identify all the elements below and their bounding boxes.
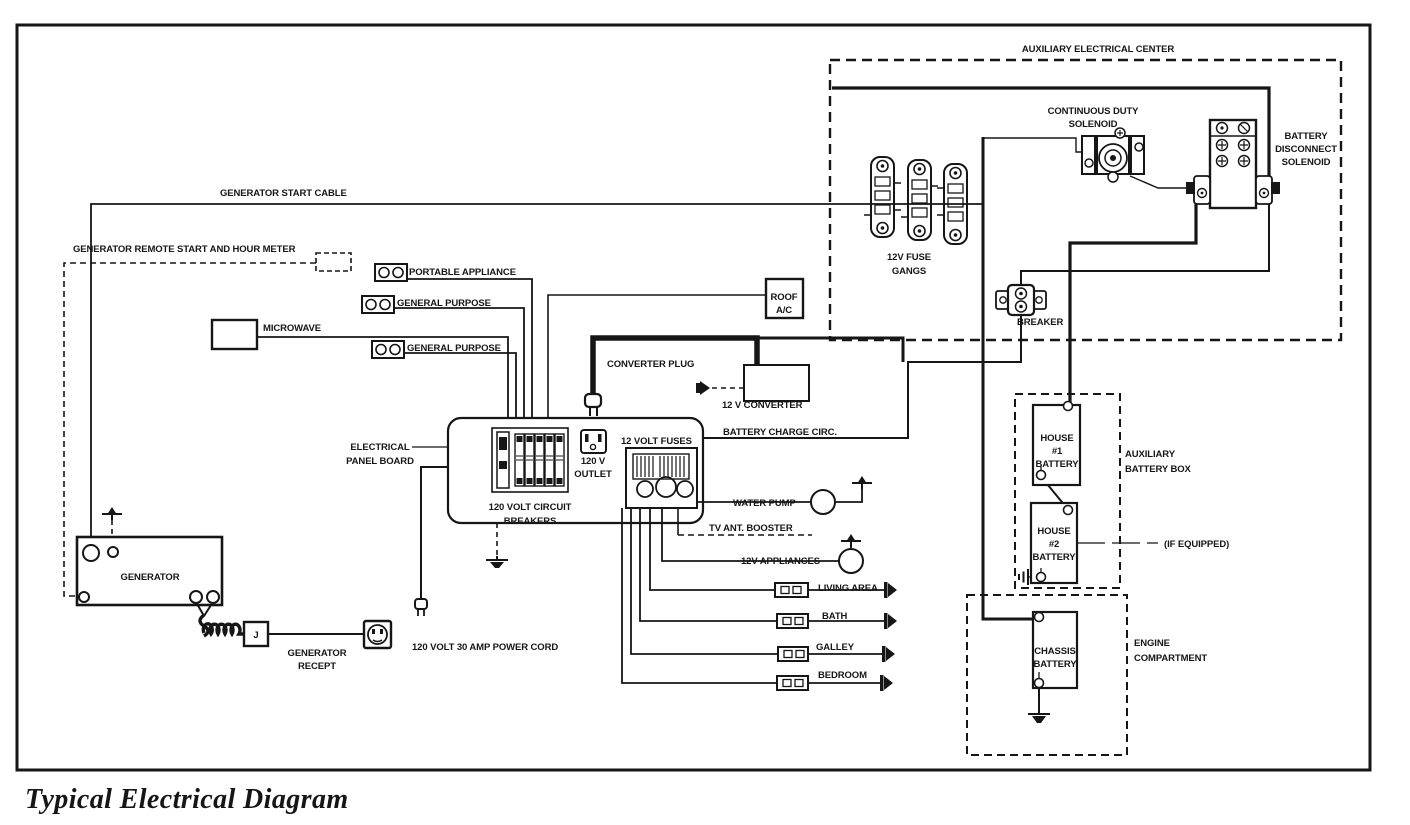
- galley-label: GALLEY: [816, 642, 855, 653]
- wire-generator-start-cable: [91, 204, 983, 546]
- engine-label-2: COMPARTMENT: [1134, 653, 1207, 664]
- bedroom-connector: [777, 676, 808, 690]
- galley-end-icon: [882, 646, 895, 662]
- fuse-gang-1: [864, 157, 901, 237]
- battery-charge-label: BATTERY CHARGE CIRC.: [723, 427, 837, 438]
- aux-center-label: AUXILIARY ELECTRICAL CENTER: [1022, 44, 1175, 55]
- fuse-gangs-label-2: GANGS: [892, 266, 926, 277]
- electrical-diagram-page: AUXILIARY ELECTRICAL CENTER CONTINUOUS D…: [0, 0, 1410, 825]
- outlet-120v-icon: [581, 430, 606, 453]
- continuous-duty-label-2: SOLENOID: [1069, 119, 1118, 130]
- battery-disconnect-label-1: BATTERY: [1284, 131, 1328, 142]
- wire-chassis-feed: [983, 137, 1034, 619]
- roof-ac-label-2: A/C: [776, 305, 792, 316]
- bedroom-end-icon: [880, 675, 893, 691]
- fuse-gang-2: [901, 160, 938, 240]
- fuse-gangs-label-1: 12V FUSE: [887, 252, 931, 263]
- general-purpose-outlet-1: [362, 296, 394, 313]
- twelve-v-converter-box: [744, 365, 809, 401]
- converter-input-icon: [696, 381, 710, 395]
- house1-label-3: BATTERY: [1035, 459, 1079, 470]
- remote-start-meter-box: [316, 253, 351, 271]
- general-purpose-1-label: GENERAL PURPOSE: [397, 298, 491, 309]
- twelve-v-appliances-label: 12V APPLIANCES: [741, 556, 820, 567]
- electrical-panel-label-2: PANEL BOARD: [346, 456, 414, 467]
- wiring: [64, 88, 1269, 714]
- power-cord-label: 120 VOLT 30 AMP POWER CORD: [412, 642, 558, 653]
- converter-plug-icon: [585, 394, 601, 416]
- living-area-connector: [775, 583, 808, 597]
- twelve-volt-fuse-box: [626, 448, 697, 508]
- generator-recept-label-2: RECEPT: [298, 661, 336, 672]
- house1-label-2: #1: [1052, 446, 1063, 457]
- twelve-v-appliances-ground-icon: [841, 534, 861, 547]
- tv-ant-booster-label: TV ANT. BOOSTER: [709, 523, 793, 534]
- electrical-panel-label-1: ELECTRICAL: [350, 442, 409, 453]
- wire-power-cord: [421, 467, 448, 599]
- wire-solenoid-to-stud: [1130, 176, 1190, 188]
- continuous-duty-solenoid: [1082, 128, 1144, 182]
- generator-ground-icon: [102, 507, 122, 520]
- battery-disconnect-label-3: SOLENOID: [1282, 157, 1331, 168]
- circuit-breakers-label-2: BREAKERS: [504, 516, 557, 527]
- house1-label-1: HOUSE: [1040, 433, 1073, 444]
- bath-connector: [777, 614, 808, 628]
- if-equipped-label: (IF EQUIPPED): [1164, 539, 1229, 550]
- roof-ac-label-1: ROOF: [770, 292, 797, 303]
- battery-disconnect-label-2: DISCONNECT: [1275, 144, 1337, 155]
- general-purpose-outlet-2: [372, 341, 404, 358]
- aux-battery-box-label-1: AUXILIARY: [1125, 449, 1176, 460]
- battery-disconnect-solenoid: [1186, 120, 1280, 208]
- generator: [77, 537, 222, 605]
- continuous-duty-label-1: CONTINUOUS DUTY: [1048, 106, 1140, 117]
- wire-solenoid-link: [983, 138, 1084, 152]
- converter-plug-label: CONVERTER PLUG: [607, 359, 694, 370]
- house2-label-1: HOUSE: [1037, 526, 1070, 537]
- panel-ground-icon: [486, 556, 508, 568]
- wire-general-purpose-2: [404, 353, 516, 418]
- general-purpose-2-label: GENERAL PURPOSE: [407, 343, 501, 354]
- circuit-breakers-label-1: 120 VOLT CIRCUIT: [489, 502, 572, 513]
- house2-label-3: BATTERY: [1032, 552, 1076, 563]
- breaker-label: BREAKER: [1017, 317, 1064, 328]
- chassis-label-2: BATTERY: [1033, 659, 1077, 670]
- wire-aec-top-feed: [832, 88, 1269, 181]
- generator-recept-label-1: GENERATOR: [288, 648, 347, 659]
- bath-end-icon: [884, 613, 897, 629]
- outlet-120v-label-1: 120 V: [581, 456, 606, 467]
- j-box-label: J: [253, 630, 258, 641]
- chassis-ground-icon: [1028, 714, 1050, 723]
- twelve-volt-fuses-label: 12 VOLT FUSES: [621, 436, 692, 447]
- generator-recept-icon: [364, 621, 391, 648]
- twelve-v-appliances-icon: [839, 549, 863, 573]
- engine-label-1: ENGINE: [1134, 638, 1170, 649]
- microwave-label: MICROWAVE: [263, 323, 321, 334]
- outlet-120v-label-2: OUTLET: [574, 469, 612, 480]
- branch-breakers: [515, 434, 564, 486]
- wire-general-purpose-1: [394, 308, 524, 418]
- generator-label: GENERATOR: [121, 572, 180, 583]
- microwave-box: [212, 320, 257, 349]
- bedroom-label: BEDROOM: [818, 670, 867, 681]
- water-pump-label: WATER PUMP: [733, 498, 796, 509]
- power-cord-plug-icon: [415, 599, 427, 616]
- wire-house-battery-feed: [1070, 193, 1196, 402]
- house2-bond-icon: [1019, 569, 1028, 585]
- diagram-title: Typical Electrical Diagram: [25, 784, 349, 815]
- generator-start-cable-label: GENERATOR START CABLE: [220, 188, 347, 199]
- portable-appliance-label: PORTABLE APPLIANCE: [409, 267, 516, 278]
- twelve-v-converter-label: 12 V CONVERTER: [722, 400, 803, 411]
- chassis-label-1: CHASSIS: [1034, 646, 1076, 657]
- diagram-canvas: AUXILIARY ELECTRICAL CENTER CONTINUOUS D…: [0, 0, 1410, 825]
- wire-water-pump-ground: [835, 489, 862, 502]
- generator-remote-label: GENERATOR REMOTE START AND HOUR METER: [73, 244, 296, 255]
- aux-battery-box-label-2: BATTERY BOX: [1125, 464, 1192, 475]
- house2-label-2: #2: [1049, 539, 1059, 550]
- living-area-label: LIVING AREA: [818, 583, 878, 594]
- main-breaker: [497, 432, 509, 488]
- wire-converter-branch: [757, 338, 903, 362]
- portable-appliance-outlet: [375, 264, 407, 281]
- galley-connector: [778, 647, 808, 661]
- aec-breaker: [996, 285, 1046, 315]
- living-area-end-icon: [884, 582, 897, 598]
- wire-cord-coil: [200, 615, 244, 636]
- bath-label: BATH: [822, 611, 848, 622]
- water-pump-ground-icon: [852, 476, 872, 489]
- water-pump-icon: [811, 490, 835, 514]
